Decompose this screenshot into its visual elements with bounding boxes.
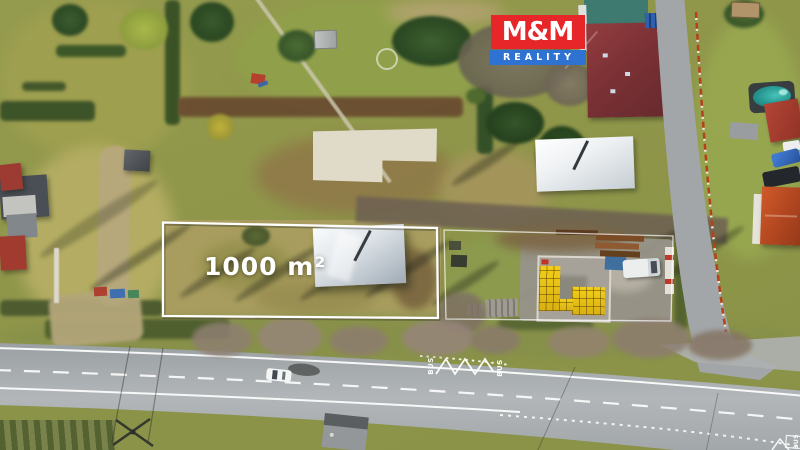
aerial-photo: 1000 m² M&M REALITY BUS BUS BUS — [0, 0, 800, 450]
bus-marking-label-end: BUS — [496, 359, 504, 377]
plot-area-label: 1000 m² — [204, 252, 326, 281]
mm-reality-logo: M&M REALITY — [489, 15, 586, 65]
yard-boundary-wall — [444, 230, 673, 321]
bus-marking-label-start: BUS — [427, 357, 435, 375]
logo-reality: REALITY — [489, 50, 586, 65]
logo-mm: M&M — [491, 15, 585, 49]
overlay-layer — [0, 0, 800, 450]
bus-marking-label-corner: BUS — [793, 434, 800, 449]
